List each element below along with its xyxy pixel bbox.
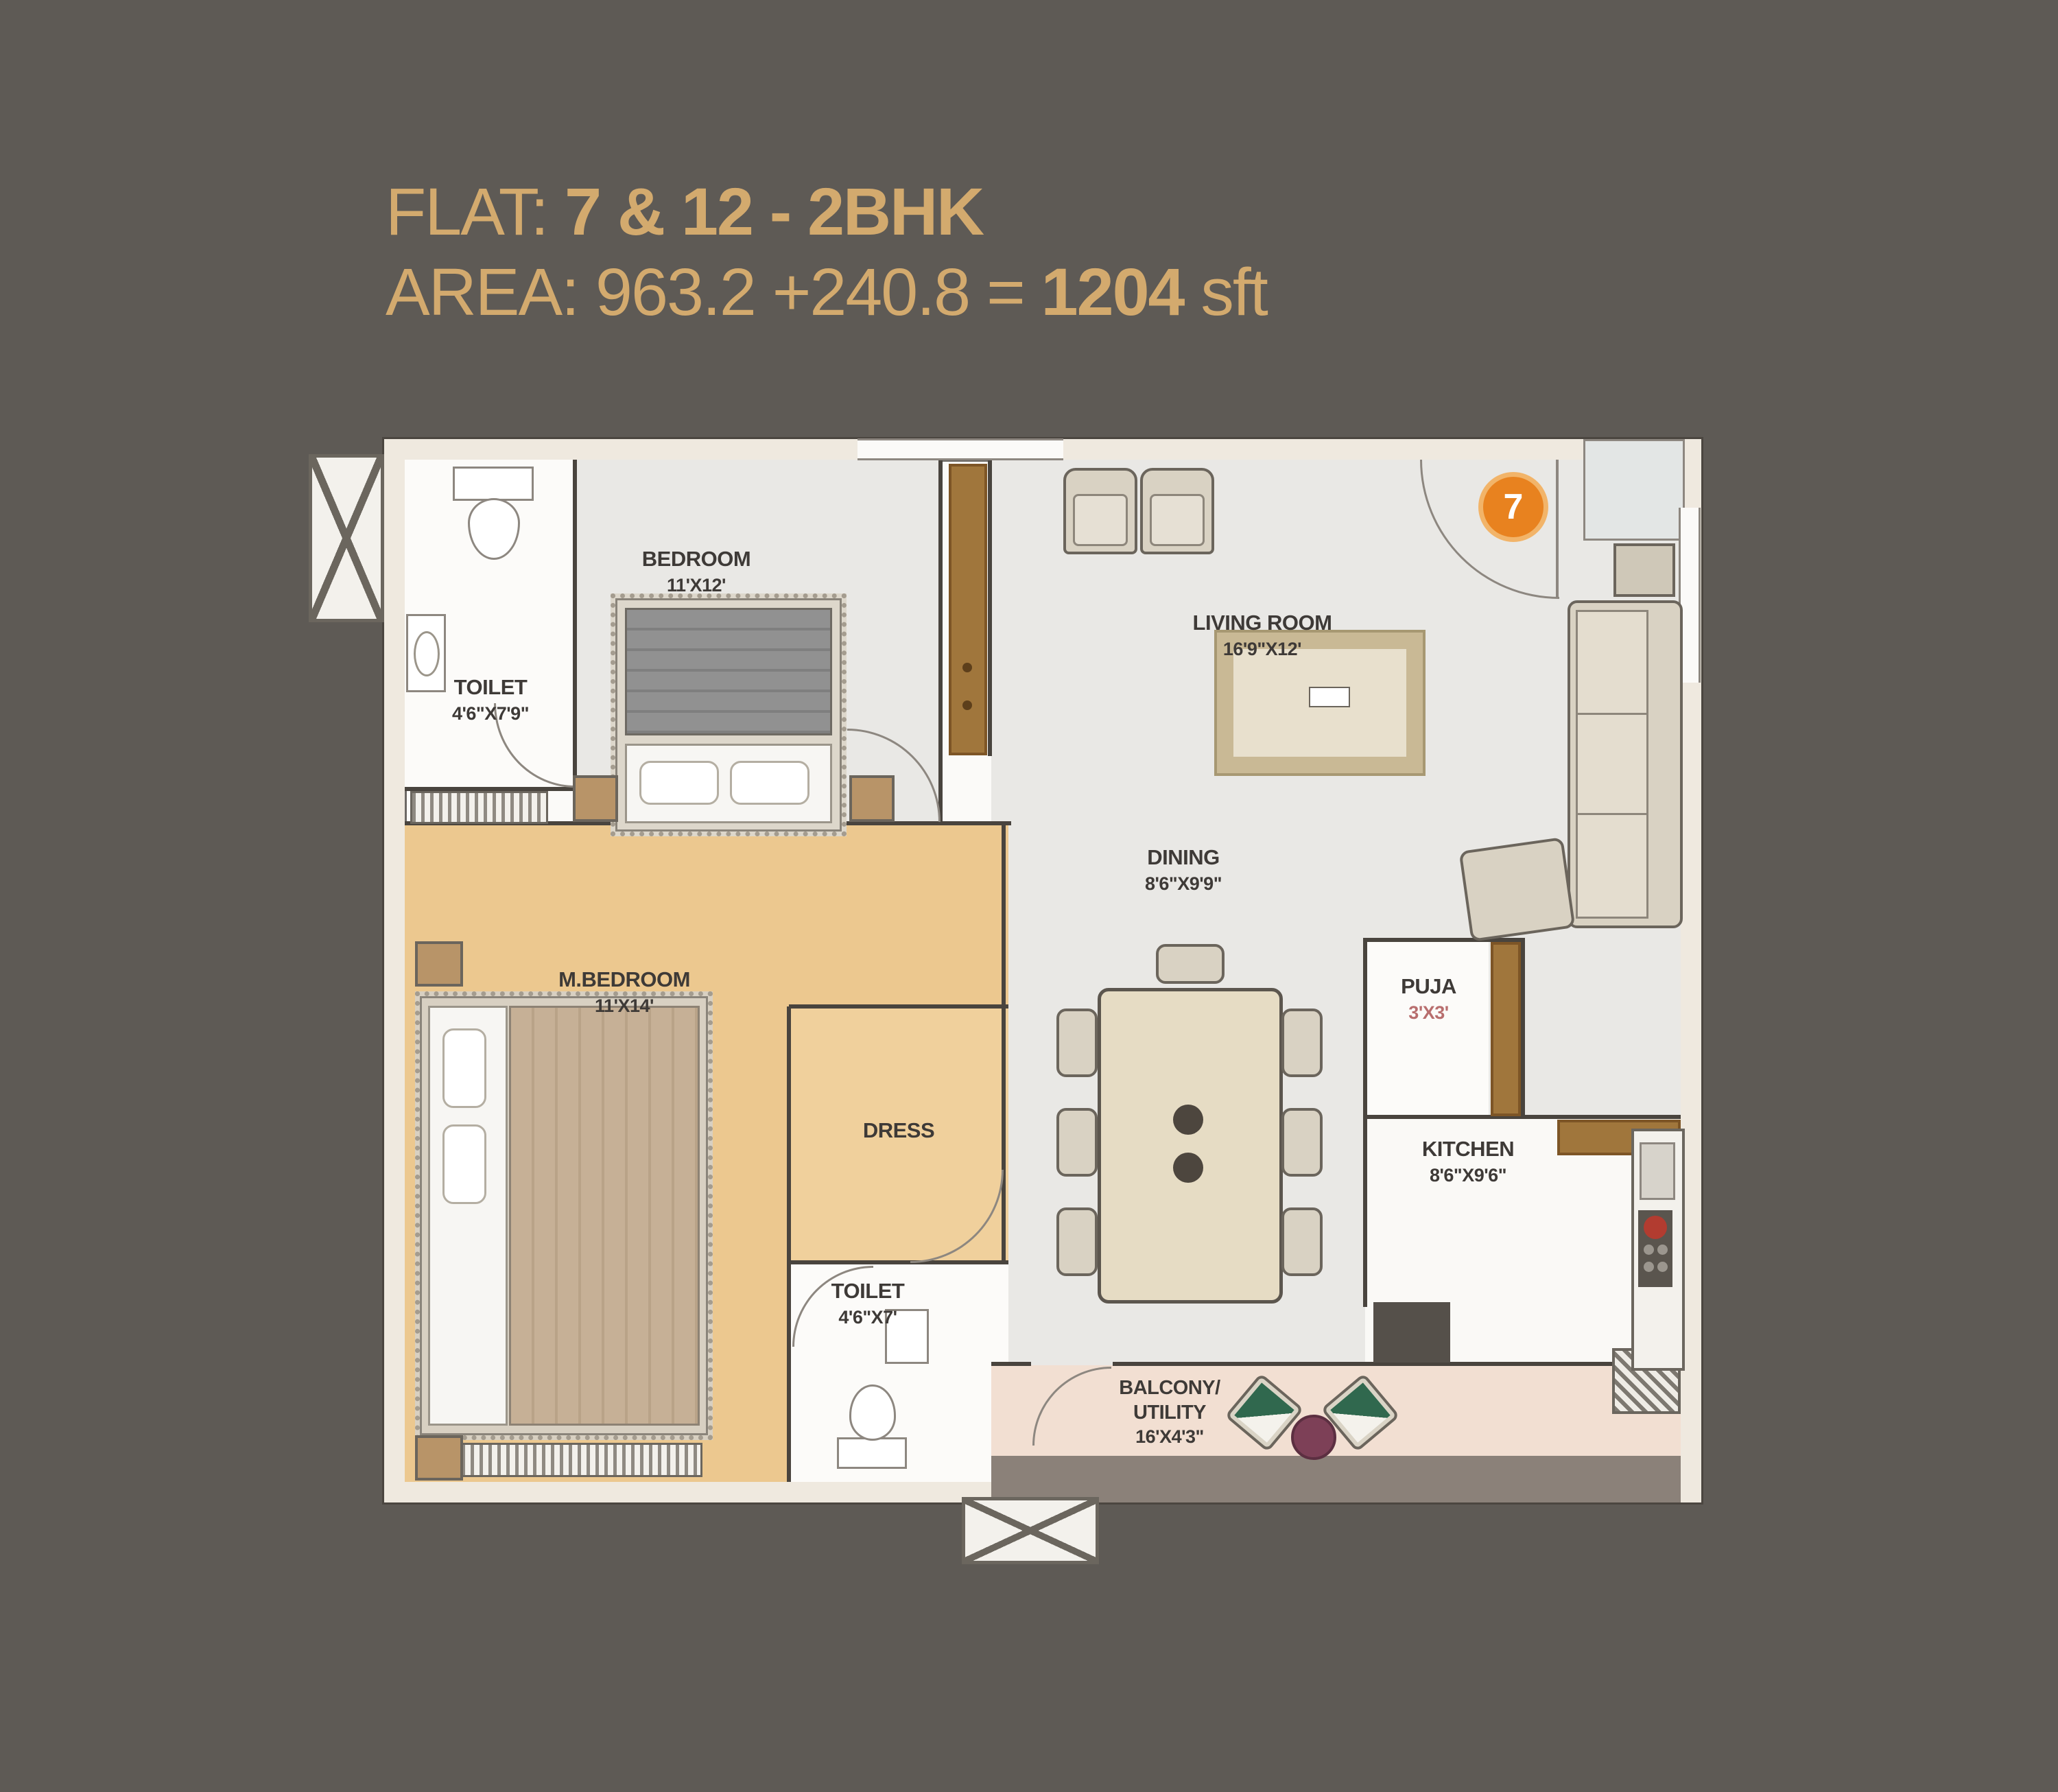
wall <box>789 1260 1008 1264</box>
sink-icon <box>1640 1142 1675 1200</box>
label-kitchen: KITCHEN 8'6"X9'6" <box>1379 1135 1557 1188</box>
bed-sheet-icon <box>428 1006 508 1426</box>
room-dims: 11'X14' <box>501 993 748 1018</box>
stove-icon <box>1638 1210 1672 1287</box>
room-name: KITCHEN <box>1379 1135 1557 1163</box>
flat-prefix: FLAT: <box>386 174 565 249</box>
label-puja: PUJA 3'X3' <box>1369 973 1489 1025</box>
label-dress: DRESS <box>803 1117 995 1144</box>
room-dims: 11'X12' <box>587 573 806 598</box>
side-table-icon <box>1613 543 1675 597</box>
wardrobe-icon <box>949 464 987 755</box>
label-toilet-2: TOILET 4'6"X7' <box>799 1277 936 1330</box>
label-balcony-utility: BALCONY/ UTILITY 16'X4'3" <box>1056 1376 1283 1448</box>
wall <box>988 460 992 756</box>
rug-accent-icon <box>1309 687 1350 707</box>
room-dims: 8'6"X9'6" <box>1379 1163 1557 1188</box>
dining-table-icon <box>1098 988 1283 1304</box>
room-dims: 8'6"X9'9" <box>1084 871 1283 896</box>
window-blind-icon <box>424 1443 702 1477</box>
wall <box>991 1362 1031 1366</box>
pillow-icon <box>442 1028 486 1108</box>
room-puja <box>1365 940 1489 1118</box>
label-bedroom: BEDROOM 11'X12' <box>587 545 806 598</box>
balcony-parapet-wall <box>991 1456 1681 1502</box>
wardrobe-knob-icon <box>962 700 972 710</box>
master-bed-icon <box>415 991 713 1440</box>
table-decor-icon <box>1173 1105 1203 1135</box>
flat-number-badge: 7 <box>1478 472 1548 542</box>
toilet-bowl-icon <box>849 1384 896 1441</box>
sofa-icon <box>1568 600 1683 928</box>
nightstand-icon <box>415 941 463 987</box>
rug-center-icon <box>1233 649 1406 757</box>
room-name: TOILET <box>799 1277 936 1305</box>
dining-chair-icon <box>1281 1009 1323 1077</box>
room-dims: 16'X4'3" <box>1056 1425 1283 1448</box>
burner-icon <box>1644 1245 1654 1255</box>
area-unit: sft <box>1183 255 1266 329</box>
wall <box>1002 823 1006 1262</box>
window-icon <box>858 438 1063 460</box>
bed-blanket-icon <box>509 1006 700 1426</box>
flat-title-line: FLAT: 7 & 12 - 2BHK <box>386 172 1267 252</box>
label-toilet-1: TOILET 4'6"X7'9" <box>405 674 576 726</box>
room-name: DINING <box>1084 844 1283 871</box>
room-name: LIVING ROOM <box>1159 609 1365 637</box>
entry-door-leaf-icon <box>1556 460 1559 597</box>
pillow-icon <box>730 761 809 805</box>
armchair-icon <box>1063 468 1137 554</box>
dining-chair-icon <box>1056 1108 1098 1177</box>
dining-chair-icon <box>1156 944 1225 984</box>
wall <box>1363 1118 1367 1307</box>
wall <box>938 460 943 823</box>
flat-value: 7 & 12 - 2BHK <box>565 174 983 249</box>
area-prefix: AREA: 963.2 +240.8 = <box>386 255 1041 329</box>
label-living-room: LIVING ROOM 16'9"X12' <box>1159 609 1365 661</box>
room-name: DRESS <box>803 1117 995 1144</box>
label-dining: DINING 8'6"X9'9" <box>1084 844 1283 896</box>
dining-chair-icon <box>1281 1108 1323 1177</box>
wall <box>1521 940 1525 1118</box>
room-name-line2: UTILITY <box>1056 1400 1283 1425</box>
table-decor-icon <box>1173 1153 1203 1183</box>
nightstand-icon <box>573 775 618 822</box>
duct-shaft-icon <box>962 1497 1099 1564</box>
dining-chair-icon <box>1281 1207 1323 1276</box>
room-dims: 3'X3' <box>1369 1000 1489 1025</box>
room-name: M.BEDROOM <box>501 966 748 993</box>
dining-chair-icon <box>1056 1207 1098 1276</box>
armchair-seat-icon <box>1150 494 1205 546</box>
bed-icon <box>611 593 847 836</box>
plan-title-block: FLAT: 7 & 12 - 2BHK AREA: 963.2 +240.8 =… <box>386 172 1267 332</box>
wall <box>787 1006 791 1482</box>
nightstand-icon <box>849 775 895 822</box>
room-dims: 4'6"X7'9" <box>405 701 576 726</box>
pillow-icon <box>639 761 719 805</box>
floorplan-canvas: 7 <box>384 439 1701 1502</box>
sofa-cushions-icon <box>1576 610 1648 919</box>
armchair-seat-icon <box>1073 494 1128 546</box>
wall <box>789 1004 1008 1009</box>
burner-icon <box>1657 1262 1668 1272</box>
room-name: BALCONY/ <box>1056 1376 1283 1400</box>
burner-icon <box>1644 1216 1667 1239</box>
sofa-seam-icon <box>1578 713 1646 715</box>
bed-blanket-icon <box>625 608 832 735</box>
toilet-tank-icon <box>453 467 534 501</box>
basin-bowl-icon <box>414 631 440 676</box>
toilet-tank-icon <box>837 1437 907 1469</box>
wall <box>1363 940 1367 1118</box>
entry-landing-niche <box>1583 439 1685 541</box>
pillow-icon <box>442 1124 486 1204</box>
puja-cupboard-icon <box>1491 942 1521 1116</box>
burner-icon <box>1644 1262 1654 1272</box>
room-name: TOILET <box>405 674 576 701</box>
lounge-chair-icon <box>1458 837 1575 942</box>
nightstand-icon <box>415 1435 463 1481</box>
burner-icon <box>1657 1245 1668 1255</box>
flat-number: 7 <box>1504 486 1524 528</box>
wall <box>1363 1115 1681 1119</box>
label-master-bedroom: M.BEDROOM 11'X14' <box>501 966 748 1018</box>
room-name: BEDROOM <box>587 545 806 573</box>
wardrobe-knob-icon <box>962 663 972 672</box>
balcony-table-icon <box>1291 1415 1336 1460</box>
dining-chair-icon <box>1056 1009 1098 1077</box>
armchair-icon <box>1140 468 1214 554</box>
bed-sheet-icon <box>625 744 832 823</box>
room-dims: 4'6"X7' <box>799 1305 936 1330</box>
area-total: 1204 <box>1041 255 1184 329</box>
area-title-line: AREA: 963.2 +240.8 = 1204 sft <box>386 252 1267 332</box>
window-blind-icon <box>410 791 548 824</box>
room-name: PUJA <box>1369 973 1489 1000</box>
room-dims: 16'9"X12' <box>1159 637 1365 661</box>
duct-shaft-icon <box>309 454 384 622</box>
refrigerator-icon <box>1373 1302 1450 1363</box>
sofa-seam-icon <box>1578 813 1646 815</box>
kitchen-counter-icon <box>1631 1129 1685 1371</box>
floor-plan-page: { "title": { "flat_prefix": "FLAT: ", "f… <box>0 0 2058 1792</box>
